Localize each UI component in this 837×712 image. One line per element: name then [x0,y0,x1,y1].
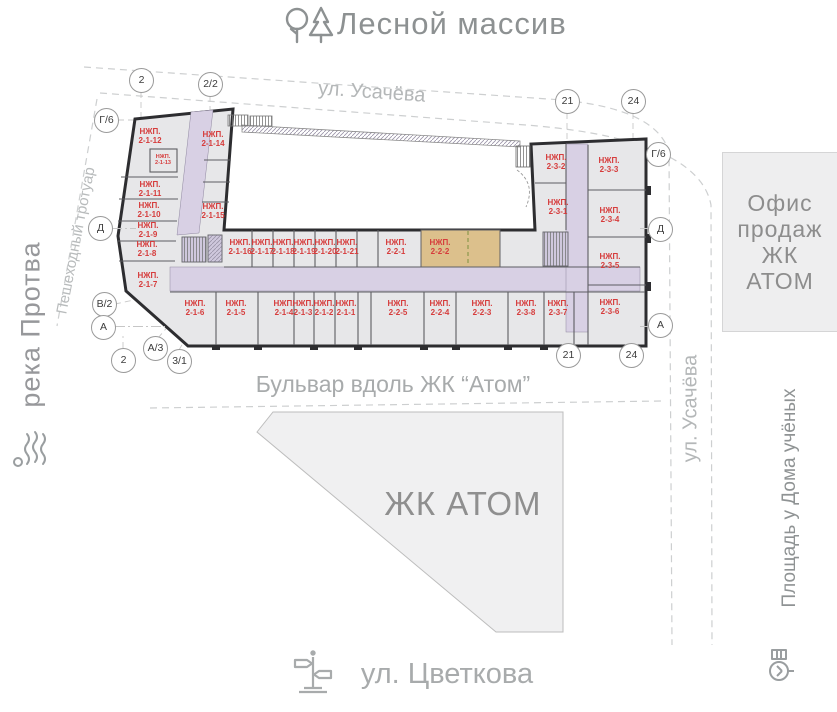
axis-marker-21: 21 [556,343,581,368]
axis-marker-А/3: А/3 [143,336,168,361]
axis-marker-3/1: 3/1 [167,349,192,374]
axis-marker-2: 2 [129,68,154,93]
site-plan-canvas: Лесной массив ул. Усачёва Пешеходный тро… [0,0,837,712]
axis-marker-Г/6: Г/6 [94,108,119,133]
axis-marker-2: 2 [111,348,136,373]
axis-marker-Д: Д [648,217,673,242]
axis-marker-Д: Д [88,216,113,241]
axis-marker-А: А [91,315,116,340]
axis-marker-21: 21 [555,89,580,114]
axis-marker-24: 24 [621,89,646,114]
axis-marker-Г/6: Г/6 [646,142,671,167]
axis-marker-2/2: 2/2 [198,72,223,97]
axis-markers-layer: 22/22124Г/6Г/6ДДВ/2АА2А/33/12124 [0,0,837,712]
axis-marker-В/2: В/2 [92,292,117,317]
axis-marker-24: 24 [619,343,644,368]
axis-marker-А: А [648,313,673,338]
